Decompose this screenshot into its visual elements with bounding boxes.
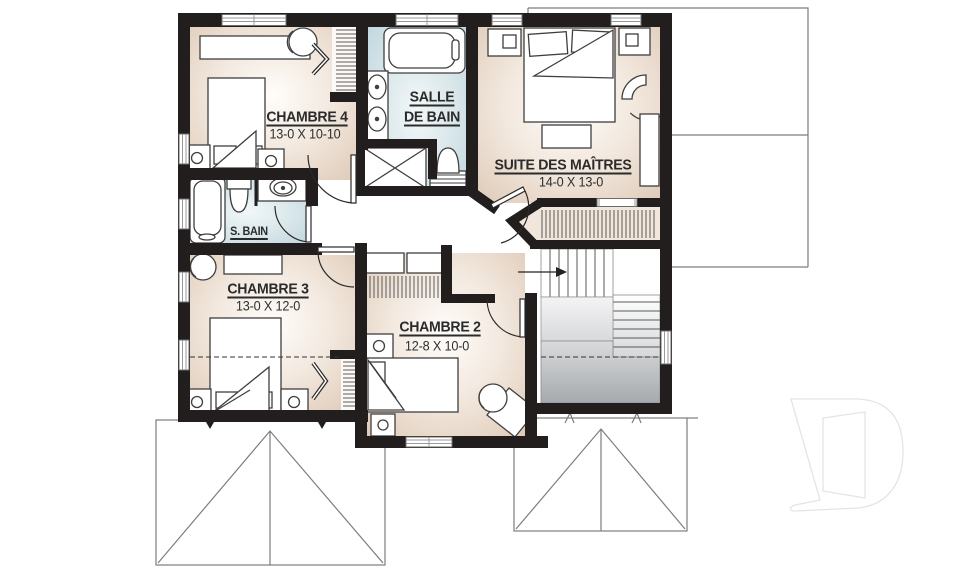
window (179, 134, 189, 164)
room-label-chambre4: CHAMBRE 4 (266, 109, 347, 126)
window (611, 15, 641, 26)
right-roof (514, 418, 698, 531)
floor-plan-canvas: CHAMBRE 4 13-0 X 10-10 SALLE DE BAIN SUI… (0, 0, 960, 569)
round-chair (289, 28, 317, 56)
bathtub-inner (194, 181, 221, 235)
room-label-suite: SUITE DES MAÎTRES (494, 157, 631, 174)
sink-drain (375, 117, 378, 120)
room-dims-chambre4: 13-0 X 10-10 (269, 127, 340, 142)
floor-plan-drawing (0, 0, 960, 569)
linen-closet (364, 148, 426, 188)
master-closet-hanging-rod (540, 210, 656, 238)
lamp (626, 34, 638, 46)
staircase (518, 249, 660, 403)
window (396, 15, 458, 26)
sink-drain (375, 85, 378, 88)
garage-roof (156, 420, 385, 565)
dresser (640, 114, 659, 186)
bathtub-faucet (199, 234, 215, 240)
window (179, 272, 189, 302)
window (492, 15, 522, 26)
room-label-chambre2: CHAMBRE 2 (399, 319, 480, 336)
window (179, 199, 189, 229)
lamp (289, 397, 300, 408)
bathtub-inner (389, 33, 455, 68)
window (406, 437, 452, 447)
toilet-bowl (230, 189, 248, 212)
bench (542, 125, 591, 148)
lamp (192, 153, 203, 164)
lamp (192, 397, 203, 408)
stair-landing (541, 297, 613, 341)
lamp (374, 341, 385, 352)
lamp (378, 420, 388, 430)
closet-door-panel (366, 253, 404, 273)
lamp (503, 35, 516, 48)
room-label-salle-de-bain-2: DE BAIN (404, 109, 460, 126)
bathtub-faucet (452, 40, 459, 60)
window (222, 15, 286, 26)
room-label-salle-de-bain-1: SALLE (410, 89, 455, 106)
room-dims-chambre3: 13-0 X 12-0 (236, 299, 300, 314)
closet-door-panel (407, 253, 445, 273)
sink-drain (282, 187, 285, 190)
room-dims-suite: 14-0 X 13-0 (539, 175, 603, 190)
room-label-sbain: S. BAIN (230, 226, 268, 238)
stair-right-flight (613, 295, 660, 357)
window (179, 340, 189, 370)
room-label-chambre3: CHAMBRE 3 (227, 281, 308, 298)
closet4-hanging-rod (336, 28, 356, 91)
closet-opening-threshold (597, 199, 637, 207)
dresser (224, 255, 282, 274)
builder-logo-watermark (791, 399, 904, 511)
pillow (528, 32, 567, 57)
room-dims-chambre2: 12-8 X 10-0 (405, 339, 469, 354)
toilet-tank (227, 179, 251, 189)
window (661, 331, 671, 364)
closet2-hanging-rod (364, 276, 445, 298)
lamp (266, 156, 277, 167)
